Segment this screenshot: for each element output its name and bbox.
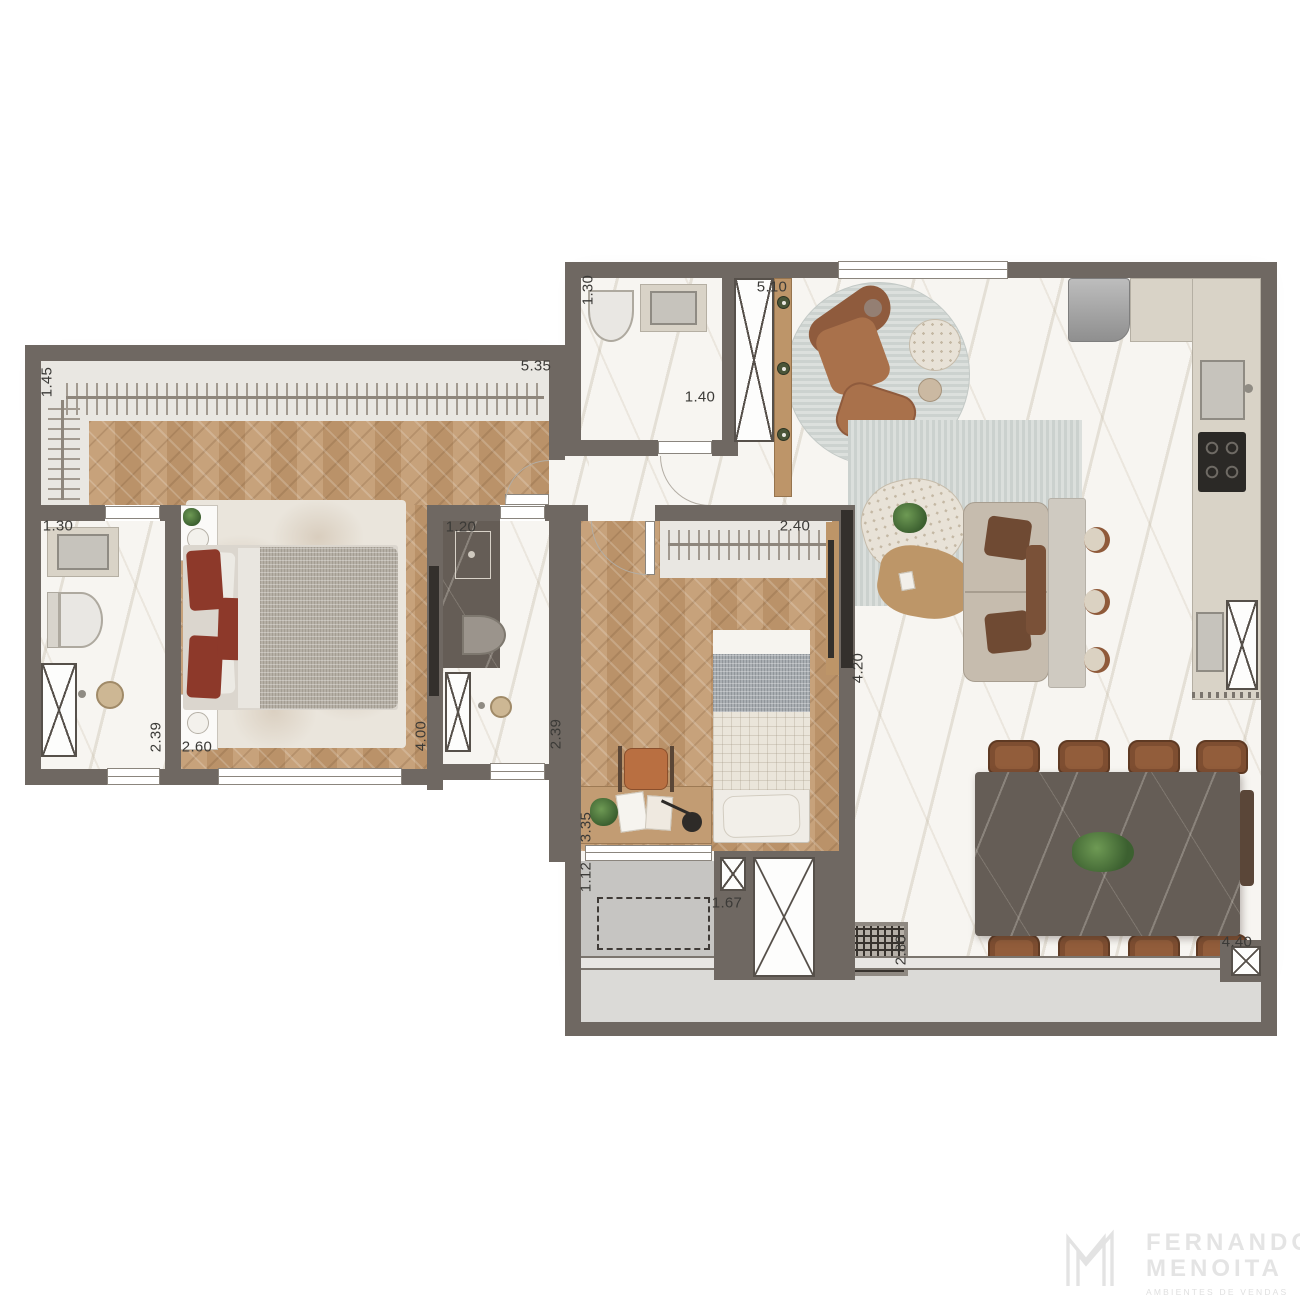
- window-master: [218, 768, 402, 785]
- bath1-round-basin-icon: [96, 681, 124, 709]
- counter-edge-hatch: [1192, 692, 1261, 698]
- dim-laundry-width: 1.12: [579, 862, 594, 892]
- dim-closet2: 2.40: [780, 519, 810, 534]
- bath2-shaft: [445, 672, 471, 752]
- coffee-table-plant-icon: [893, 503, 927, 533]
- balcony-parapet: [565, 1022, 1277, 1036]
- logo-monogram-icon: [1058, 1220, 1132, 1294]
- floor-plan: 1.45 5.35 1.30 2.39 2.60 4.00 1.20 2.39 …: [0, 0, 1300, 1300]
- wall-master-east: [549, 345, 565, 460]
- bar-stool-1: [1084, 527, 1110, 553]
- floor-lamp-icon: [918, 378, 942, 402]
- wall-lavabo-bottom-a: [581, 440, 658, 456]
- wall-bedroom2-top-b: [655, 505, 855, 521]
- bath1-faucet-icon: [78, 690, 86, 698]
- dim-dining-width: 2.80: [894, 935, 909, 965]
- dining-chair: [1196, 740, 1248, 774]
- ceiling-lamp-icon: [864, 299, 882, 317]
- dining-end-bench: [1240, 790, 1254, 886]
- balcony-floor: [581, 970, 1261, 1022]
- bar-stool-seat: [1084, 648, 1105, 671]
- wine-shelf: [774, 278, 792, 497]
- window-bath2: [490, 763, 545, 780]
- wall-right: [1261, 262, 1277, 1036]
- wall-bath1-east: [165, 505, 181, 769]
- logo-name-line2: MENOITA: [1146, 1256, 1300, 1282]
- dim-master-bed-width: 2.60: [182, 740, 212, 755]
- wall-master-top: [25, 345, 565, 361]
- dining-chair-seat: [1203, 746, 1241, 769]
- dining-chair-seat: [1065, 746, 1103, 769]
- desk-notebook1: [615, 791, 648, 833]
- dim-dining-length: 4.40: [1222, 935, 1252, 950]
- lavabo-door-leaf: [658, 441, 712, 454]
- dim-living-length: 4.20: [851, 653, 866, 683]
- entry-shaft: [734, 278, 774, 442]
- wall-lavabo-bottom-b: [712, 440, 738, 456]
- dim-bath1-width: 1.30: [43, 519, 73, 534]
- dining-centerpiece-plant-icon: [1072, 832, 1134, 872]
- bed2-pillow: [722, 794, 800, 839]
- dim-laundry-length: 1.67: [712, 896, 742, 911]
- nightstand-plant-icon: [183, 508, 201, 526]
- bar-stool-2: [1084, 589, 1110, 615]
- bed2-blanket: [713, 654, 810, 712]
- bath2-door-leaf: [500, 506, 545, 519]
- bath1-sink: [57, 534, 109, 570]
- wine-bottle-icon: [777, 362, 790, 375]
- dim-bath2-width: 1.20: [446, 520, 476, 535]
- dim-bath2-length: 2.39: [549, 719, 564, 749]
- nightstand-lamp2-icon: [187, 712, 209, 734]
- closet-rail-left: [61, 400, 64, 500]
- closet2-rail: [668, 543, 826, 546]
- dim-lavabo-length: 1.40: [685, 390, 715, 405]
- dining-chair-seat: [1135, 746, 1173, 769]
- wall-top-right: [1008, 262, 1277, 278]
- desk-chair-seat: [624, 748, 668, 790]
- island-counter: [1048, 498, 1086, 688]
- wall-bedroom2-top-a: [581, 505, 588, 521]
- dim-lavabo-width: 1.30: [581, 275, 596, 305]
- master-tv-icon: [429, 566, 439, 696]
- wall-top-left: [565, 262, 838, 278]
- logo-tagline: AMBIENTES DE VENDAS: [1146, 1287, 1300, 1297]
- coffee-table-book: [899, 571, 916, 591]
- wall-bath1-top-b: [160, 505, 181, 521]
- side-table: [909, 319, 961, 371]
- bottle-cap: [782, 301, 786, 305]
- bedroom2-tv-icon: [828, 540, 834, 658]
- sofa-throw: [1026, 545, 1046, 635]
- bottle-cap: [782, 433, 786, 437]
- laundry-shaft-small: [720, 857, 746, 891]
- bath2-faucet-icon: [478, 702, 485, 709]
- washer-provision-outline: [597, 897, 710, 950]
- dining-chair: [1058, 740, 1110, 774]
- kitchen-faucet-icon: [1244, 384, 1253, 393]
- bar-stool-seat: [1084, 590, 1105, 613]
- dim-master-bed-length: 4.00: [414, 721, 429, 751]
- corner-shaft: [1231, 946, 1261, 976]
- dining-chair-seat: [995, 746, 1033, 769]
- bath1-shaft: [41, 663, 77, 757]
- closet-hangers-icon: [66, 383, 544, 415]
- dim-bath1-length: 2.39: [149, 722, 164, 752]
- bed2-sheet-fold: [713, 630, 810, 654]
- sliding-glass-living: [855, 956, 1220, 970]
- cooktop-icon: [1198, 432, 1246, 492]
- window-bedroom2: [585, 845, 712, 861]
- master-bedroom-floor-top: [89, 421, 549, 505]
- lavabo-sink: [650, 291, 697, 325]
- dim-living-width: 5.10: [757, 280, 787, 295]
- refrigerator-icon: [1068, 278, 1130, 342]
- wall-master-west: [25, 345, 41, 785]
- bath1-door-leaf: [105, 506, 160, 519]
- master-bed-blanket: [260, 547, 398, 709]
- bar-stool-3: [1084, 647, 1110, 673]
- desk-lamp-icon: [682, 812, 702, 832]
- wine-bottle-icon: [777, 296, 790, 309]
- designer-logo: FERNANDO MENOITA AMBIENTES DE VENDAS: [1058, 1218, 1288, 1298]
- desk-notebook2: [645, 795, 673, 831]
- kitchen-sink: [1200, 360, 1245, 420]
- laundry-shaft-large: [753, 857, 815, 977]
- bath1-toilet-tank: [47, 592, 59, 648]
- logo-name-line1: FERNANDO: [1146, 1230, 1300, 1256]
- dining-chair: [1128, 740, 1180, 774]
- closet-rail: [66, 396, 544, 399]
- service-sink: [1196, 612, 1224, 672]
- bath1-toilet-icon: [59, 592, 103, 648]
- dim-bedroom2-length: 3.35: [579, 812, 594, 842]
- bed2-quilt: [713, 712, 810, 790]
- bar-stool-seat: [1084, 528, 1105, 551]
- dim-master-suite-length: 5.35: [521, 359, 551, 374]
- wall-mid-left: [549, 505, 581, 862]
- window-top: [838, 261, 1008, 279]
- bottle-cap: [782, 367, 786, 371]
- sofa-pillow2: [984, 610, 1032, 654]
- kitchen-shaft: [1226, 600, 1258, 690]
- sliding-glass-laundry: [581, 956, 714, 970]
- dining-chair: [988, 740, 1040, 774]
- bath2-drain-icon: [468, 551, 475, 558]
- bath2-round-basin-icon: [490, 696, 512, 718]
- dim-master-closet: 1.45: [40, 367, 55, 397]
- living-tv-icon: [841, 510, 853, 668]
- window-bath1: [107, 768, 160, 785]
- closet-hangers-left-icon: [48, 400, 80, 500]
- hallway-floor: [549, 456, 589, 505]
- wine-bottle-icon: [777, 428, 790, 441]
